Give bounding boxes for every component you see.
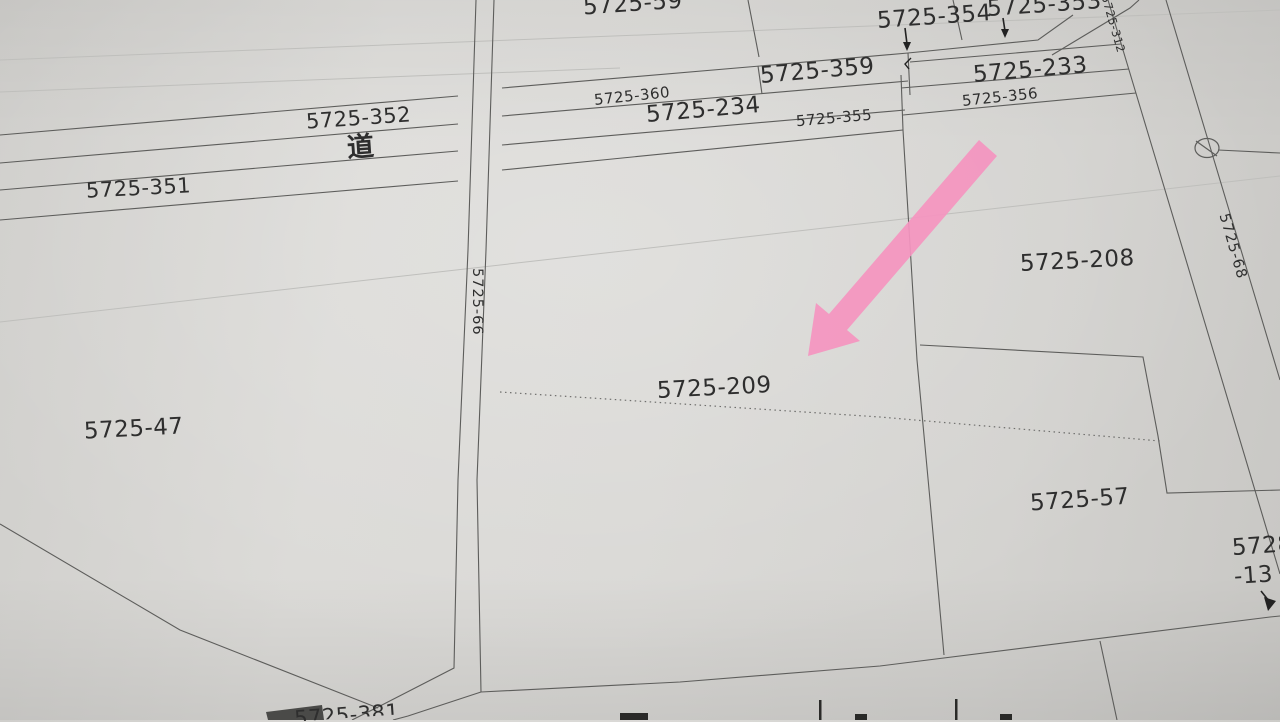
cadastral-map-photo: 5725-59 5725-354 5725-353 5725-312 5725-…: [0, 0, 1280, 720]
road-label-5725-66: 5725-66: [470, 268, 485, 336]
road-kanji-label: 道: [346, 133, 375, 162]
parcel-label-5728-line2: -13: [1233, 559, 1280, 592]
parcel-label-5728-13-clipped: 5728 -13: [1231, 530, 1280, 592]
parcel-label-5725-208: 5725-208: [1019, 247, 1135, 276]
parcel-boundary-lines: [0, 0, 1280, 720]
paper-crease-lines: [0, 10, 1280, 322]
highlight-arrow: [808, 140, 997, 356]
survey-circle-marker: [1195, 139, 1219, 158]
dotted-parcel-boundary: [500, 392, 1160, 441]
leader-arrow-icons: [903, 18, 1276, 611]
parcel-label-5725-209: 5725-209: [656, 374, 772, 403]
parcel-label-5728-line1: 5728: [1231, 530, 1280, 563]
parcel-label-5725-351: 5725-351: [86, 175, 192, 201]
parcel-label-5725-47: 5725-47: [83, 415, 184, 443]
